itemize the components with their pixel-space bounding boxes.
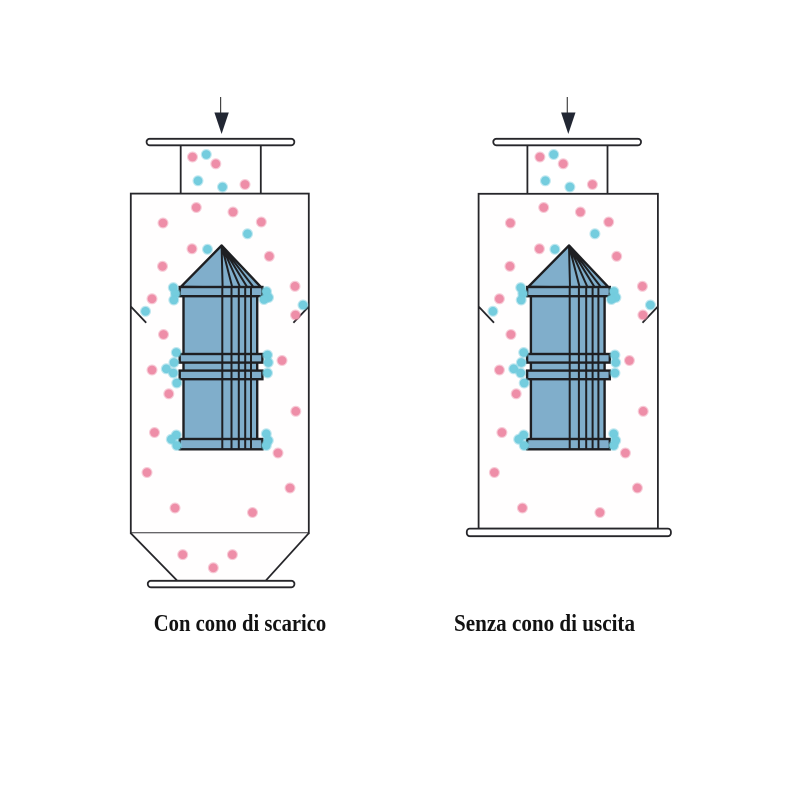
svg-text:Con cono di scarico: Con cono di scarico [154,611,327,637]
svg-text:Senza cono di uscita: Senza cono di uscita [454,611,635,637]
